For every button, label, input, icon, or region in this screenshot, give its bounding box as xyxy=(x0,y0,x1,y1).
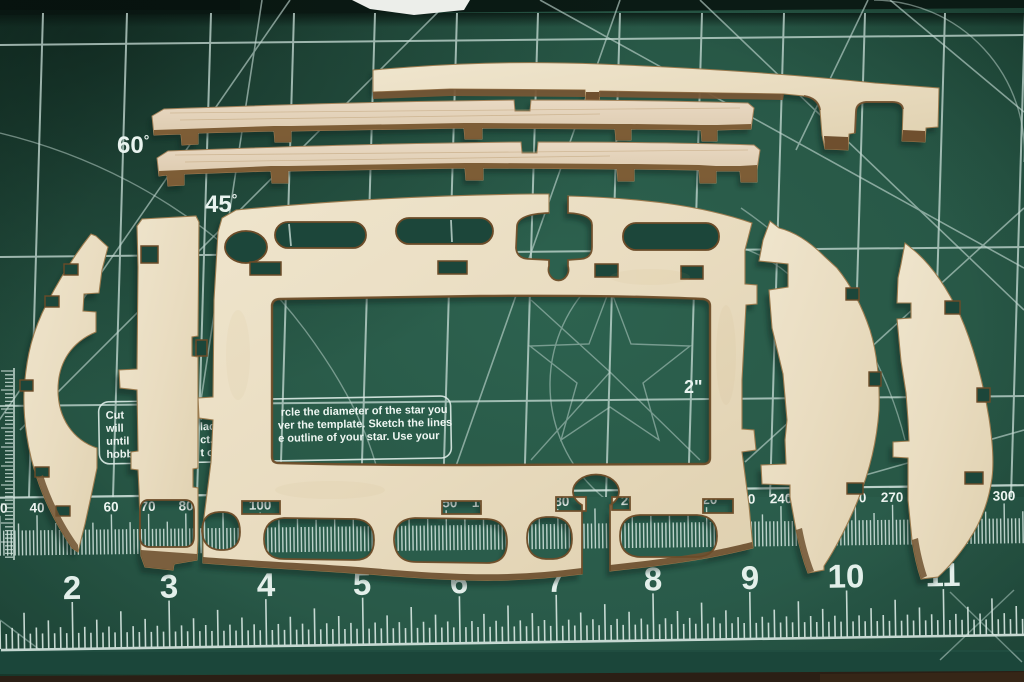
svg-text:until: until xyxy=(106,435,129,447)
svg-text:Cut: Cut xyxy=(106,410,125,422)
svg-text:270: 270 xyxy=(881,490,904,505)
svg-text:300: 300 xyxy=(993,488,1016,503)
svg-text:9: 9 xyxy=(741,559,760,596)
svg-text:60: 60 xyxy=(103,499,118,514)
svg-text:will: will xyxy=(105,423,124,435)
svg-text:2: 2 xyxy=(63,569,82,606)
svg-text:10: 10 xyxy=(827,557,864,595)
svg-text:2": 2" xyxy=(684,377,703,397)
